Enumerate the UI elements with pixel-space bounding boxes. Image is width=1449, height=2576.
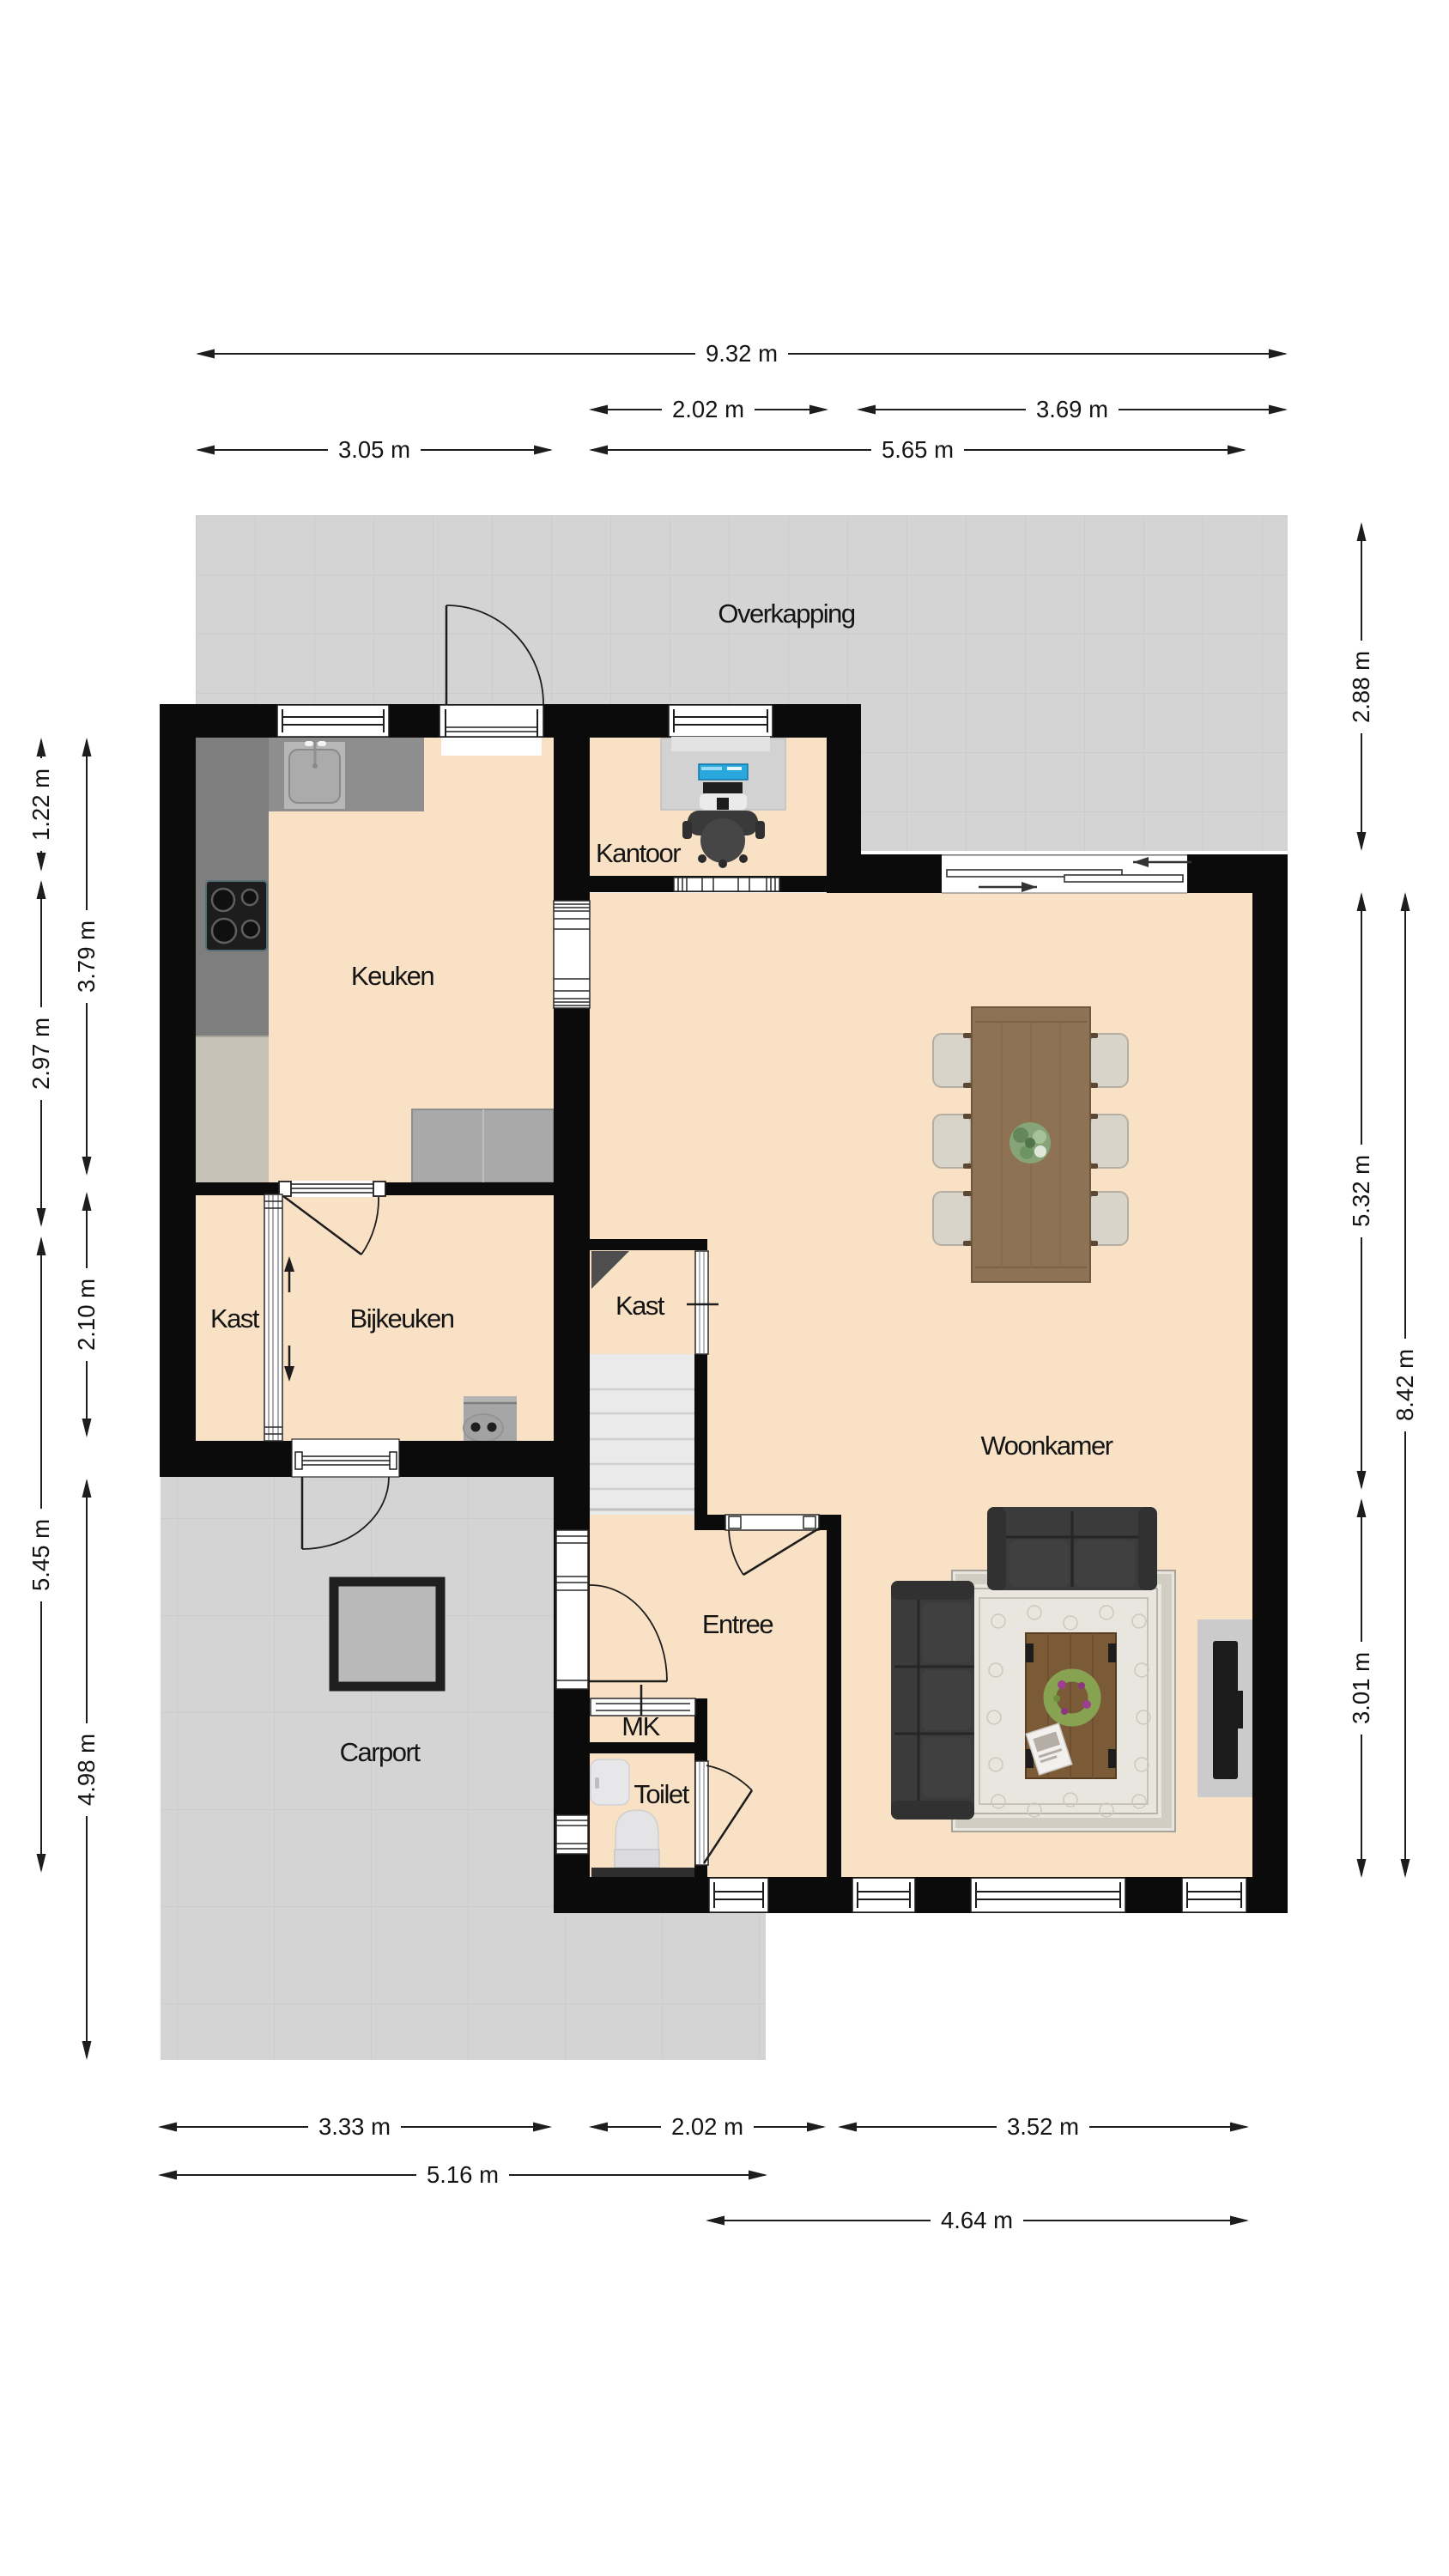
svg-text:Carport: Carport — [340, 1737, 421, 1767]
svg-text:MK: MK — [621, 1711, 660, 1741]
svg-text:Kast: Kast — [615, 1291, 665, 1321]
svg-text:Bijkeuken: Bijkeuken — [350, 1303, 454, 1334]
svg-text:5.45 m: 5.45 m — [27, 1519, 54, 1591]
svg-text:2.10 m: 2.10 m — [73, 1279, 100, 1351]
svg-text:4.98 m: 4.98 m — [73, 1734, 100, 1806]
svg-text:9.32 m: 9.32 m — [706, 340, 778, 367]
svg-text:3.79 m: 3.79 m — [73, 920, 100, 993]
svg-text:Toilet: Toilet — [634, 1779, 689, 1809]
svg-text:3.52 m: 3.52 m — [1007, 2113, 1079, 2140]
svg-text:5.65 m: 5.65 m — [882, 436, 954, 463]
svg-text:3.01 m: 3.01 m — [1348, 1652, 1374, 1724]
svg-text:2.97 m: 2.97 m — [27, 1018, 54, 1090]
svg-text:1.22 m: 1.22 m — [27, 769, 54, 841]
svg-text:2.88 m: 2.88 m — [1348, 651, 1374, 723]
svg-text:Keuken: Keuken — [351, 961, 433, 991]
svg-text:8.42 m: 8.42 m — [1391, 1349, 1418, 1421]
svg-text:Entree: Entree — [702, 1609, 773, 1639]
svg-text:Kast: Kast — [210, 1303, 260, 1334]
svg-text:5.32 m: 5.32 m — [1348, 1155, 1374, 1227]
svg-text:3.69 m: 3.69 m — [1036, 396, 1108, 422]
svg-text:Overkapping: Overkapping — [718, 598, 855, 629]
svg-text:4.64 m: 4.64 m — [941, 2207, 1013, 2233]
svg-text:Woonkamer: Woonkamer — [980, 1431, 1113, 1461]
svg-text:2.02 m: 2.02 m — [672, 396, 744, 422]
svg-text:Kantoor: Kantoor — [596, 838, 681, 868]
svg-text:3.33 m: 3.33 m — [318, 2113, 391, 2140]
svg-text:2.02 m: 2.02 m — [671, 2113, 743, 2140]
svg-text:5.16 m: 5.16 m — [427, 2161, 499, 2188]
svg-text:3.05 m: 3.05 m — [338, 436, 410, 463]
